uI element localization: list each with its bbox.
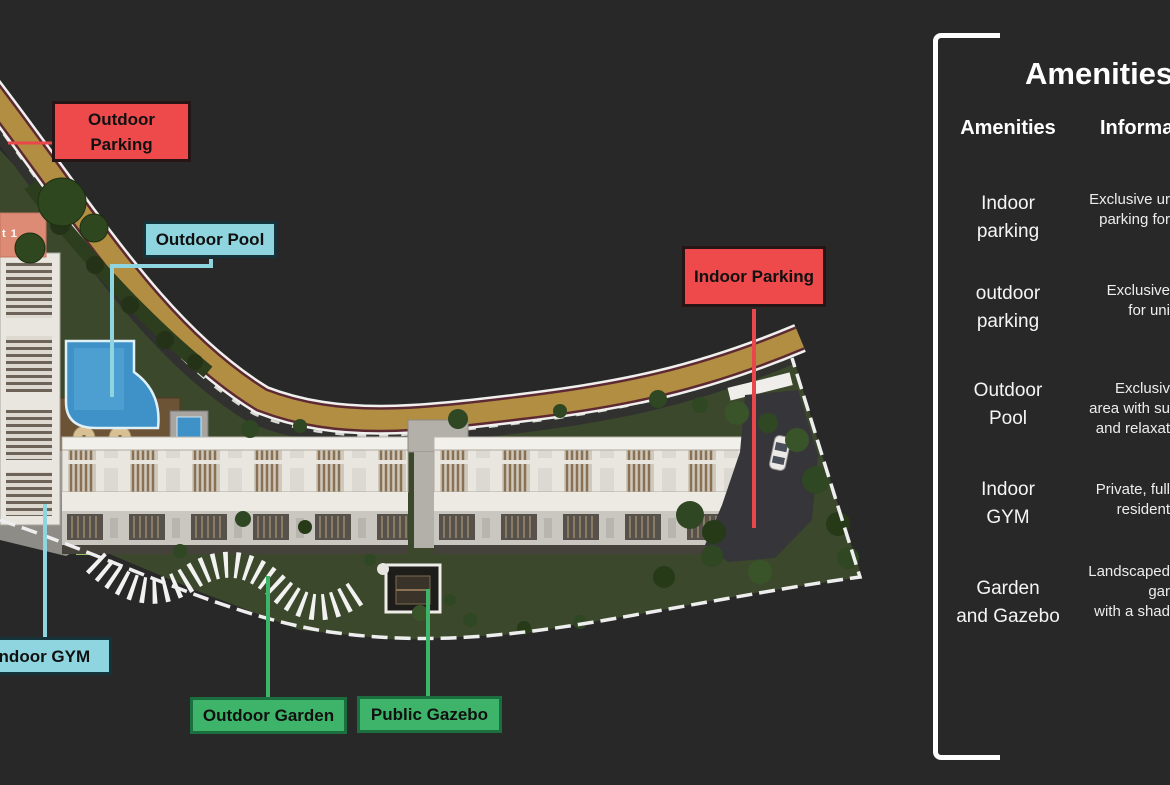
- amenity-row-name: Garden and Gazebo: [943, 575, 1073, 631]
- amenity-info-line: Landscaped: [1088, 562, 1170, 582]
- neighbour-building-tag: t 1: [2, 228, 18, 240]
- amenity-info-line: and relaxat: [1089, 419, 1170, 439]
- public-gazebo-label: Public Gazebo: [357, 696, 502, 733]
- label-line: Outdoor Garden: [203, 703, 334, 728]
- amenity-name-line: Indoor: [943, 190, 1073, 218]
- amenity-name-line: Garden: [943, 575, 1073, 603]
- amenity-name-line: parking: [943, 308, 1073, 336]
- amenity-info-line: Exclusiv: [1089, 379, 1170, 399]
- site-plan-page: t 1 Outdoor Parking Outdoor Pool Indoor …: [0, 0, 1170, 785]
- outdoor-parking-label: Outdoor Parking: [52, 101, 191, 162]
- residential-building-row-left: [62, 437, 408, 554]
- amenity-info-line: area with su: [1089, 399, 1170, 419]
- amenity-info-line: Exclusive: [1107, 281, 1170, 301]
- amenity-row-info: Exclusive for uni: [1107, 281, 1170, 321]
- label-line: Public Gazebo: [371, 702, 488, 727]
- amenity-info-line: Private, full: [1096, 480, 1170, 500]
- amenity-row-name: Indoor parking: [943, 190, 1073, 246]
- outdoor-pool-label: Outdoor Pool: [143, 221, 277, 258]
- amenity-row-name: outdoor parking: [943, 280, 1073, 336]
- amenity-info-line: with a shad: [1088, 602, 1170, 622]
- amenity-name-line: outdoor: [943, 280, 1073, 308]
- amenity-row-info: Exclusive ur parking for: [1089, 190, 1170, 230]
- amenity-row-info: Exclusiv area with su and relaxat: [1089, 379, 1170, 439]
- pool-water: [74, 348, 124, 410]
- label-line: Outdoor Pool: [156, 227, 265, 252]
- amenity-info-line: gar: [1088, 582, 1170, 602]
- column-header-amenities: Amenities: [943, 117, 1073, 140]
- indoor-gym-label: Indoor GYM: [0, 637, 112, 675]
- amenity-info-line: resident: [1096, 500, 1170, 520]
- amenity-name-line: GYM: [943, 504, 1073, 532]
- amenity-row-name: Outdoor Pool: [943, 377, 1073, 433]
- amenity-info-line: for uni: [1107, 301, 1170, 321]
- indoor-parking-label: Indoor Parking: [682, 246, 826, 307]
- residential-building-row-right: [434, 437, 750, 554]
- label-line: Parking: [90, 132, 152, 157]
- panel-title: Amenities: [1025, 56, 1170, 92]
- label-line: Indoor Parking: [694, 264, 814, 289]
- amenity-name-line: Indoor: [943, 476, 1073, 504]
- amenity-row-info: Landscaped gar with a shad: [1088, 562, 1170, 622]
- amenity-info-line: parking for: [1089, 210, 1170, 230]
- left-building: [0, 253, 60, 525]
- amenity-row-name: Indoor GYM: [943, 476, 1073, 532]
- amenity-name-line: Pool: [943, 405, 1073, 433]
- amenity-name-line: Outdoor: [943, 377, 1073, 405]
- outdoor-garden-label: Outdoor Garden: [190, 697, 347, 734]
- label-line: Indoor GYM: [0, 644, 90, 669]
- amenity-name-line: and Gazebo: [943, 603, 1073, 631]
- amenity-row-info: Private, full resident: [1096, 480, 1170, 520]
- label-line: Outdoor: [88, 107, 155, 132]
- gazebo-shape: [377, 563, 440, 612]
- amenity-info-line: Exclusive ur: [1089, 190, 1170, 210]
- amenity-name-line: parking: [943, 218, 1073, 246]
- column-header-information: Information: [1100, 117, 1170, 140]
